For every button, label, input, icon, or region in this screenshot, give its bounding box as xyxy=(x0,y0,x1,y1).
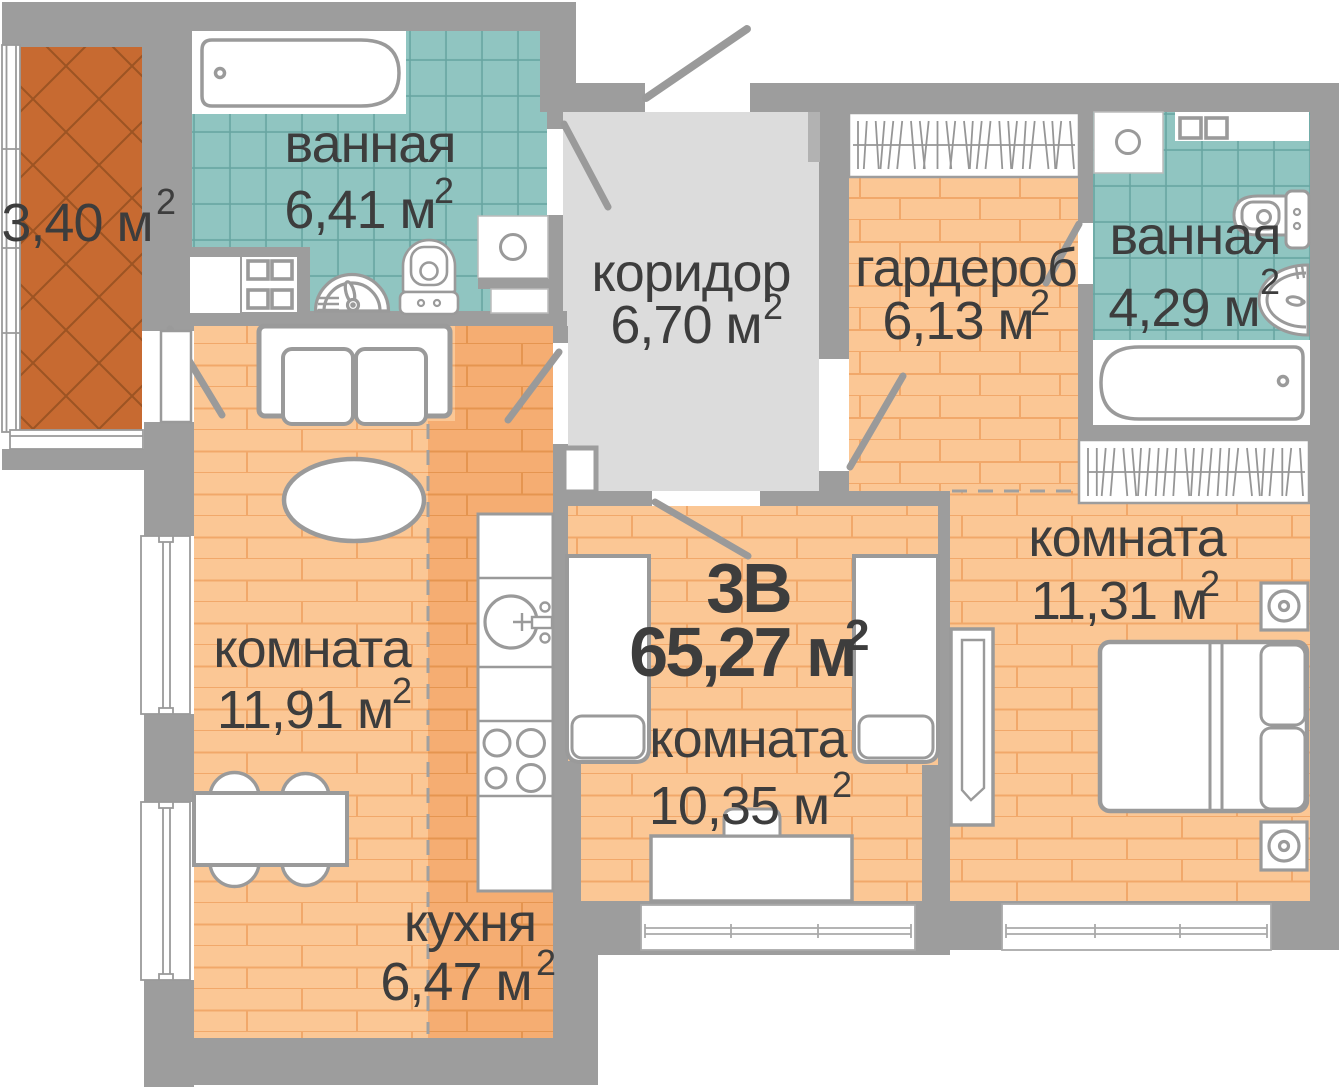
svg-text:2: 2 xyxy=(156,181,176,222)
svg-text:комната: комната xyxy=(213,619,412,679)
svg-text:6,41 м: 6,41 м xyxy=(284,180,435,240)
svg-text:65,27 м: 65,27 м xyxy=(629,613,854,691)
svg-text:2: 2 xyxy=(832,764,852,805)
svg-text:2: 2 xyxy=(1260,261,1280,302)
svg-text:2: 2 xyxy=(392,670,412,711)
svg-text:комната: комната xyxy=(1028,508,1227,568)
svg-text:ванная: ванная xyxy=(284,114,455,174)
svg-text:2: 2 xyxy=(1200,563,1220,604)
svg-text:6,70 м: 6,70 м xyxy=(610,295,761,355)
svg-text:ванная: ванная xyxy=(1109,206,1280,266)
svg-text:6,13 м: 6,13 м xyxy=(882,291,1033,351)
svg-text:11,31 м: 11,31 м xyxy=(1031,571,1207,631)
svg-text:6,47 м: 6,47 м xyxy=(380,952,531,1012)
svg-text:10,35 м: 10,35 м xyxy=(649,776,829,836)
svg-text:4,29 м: 4,29 м xyxy=(1108,278,1259,338)
svg-text:2: 2 xyxy=(536,942,556,983)
svg-text:2: 2 xyxy=(763,286,783,327)
svg-text:комната: комната xyxy=(649,709,848,769)
svg-text:2: 2 xyxy=(845,611,869,660)
svg-text:кухня: кухня xyxy=(404,893,536,953)
svg-text:3,40 м: 3,40 м xyxy=(1,193,152,253)
svg-text:2: 2 xyxy=(1030,282,1050,323)
svg-text:2: 2 xyxy=(434,170,454,211)
svg-text:11,91 м: 11,91 м xyxy=(217,680,393,740)
svg-text:коридор: коридор xyxy=(591,243,790,303)
